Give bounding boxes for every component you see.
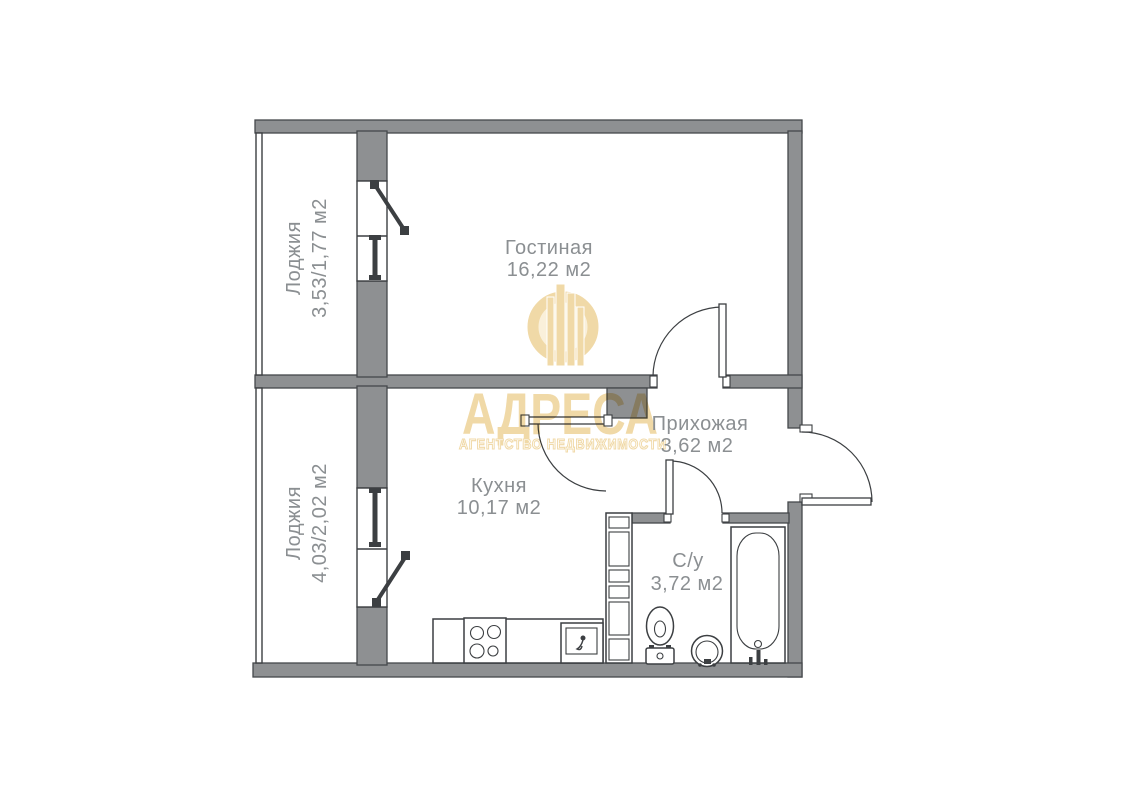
bathtub-faucet (764, 659, 768, 665)
room-label-loggia-top-name: Лоджия (283, 221, 305, 295)
wall-window-bottom-lower (357, 607, 387, 665)
vent-cell (609, 517, 629, 528)
basin-tap (712, 663, 716, 667)
washbasin-icon (692, 636, 723, 667)
room-label-loggia-top-area: 3,53/1,77 м2 (309, 198, 331, 318)
kitchen-fixtures (433, 618, 603, 663)
watermark: АДРЕСА АГЕНТСТВО НЕДВИЖИМОСТИ (459, 284, 667, 453)
burner (488, 646, 498, 656)
toilet-button (657, 653, 663, 659)
bathtub-faucet (757, 650, 761, 665)
room-label-kitchen-name: Кухня (471, 475, 527, 497)
watermark-subtitle: АГЕНТСТВО НЕДВИЖИМОСТИ (459, 436, 667, 453)
stove-icon (464, 618, 506, 663)
wall-window-bottom-upper (357, 386, 387, 488)
sash-cap (369, 542, 381, 547)
vent-cell (609, 639, 629, 660)
door-leaf (666, 460, 673, 514)
window-closed-sash (373, 492, 378, 542)
sash-cap (372, 598, 381, 607)
wall-window-top-lower (357, 281, 387, 377)
vent-cell (609, 602, 629, 635)
room-label-hallway-area: 3,62 м2 (661, 435, 734, 457)
room-label-kitchen-area: 10,17 м2 (457, 497, 541, 519)
door-entrance (800, 425, 872, 505)
sash-cap (401, 551, 410, 560)
sash-cap (369, 488, 381, 493)
door-swing-arc (670, 461, 722, 513)
wall-bath-top-right (723, 513, 789, 523)
toilet-icon (646, 607, 674, 664)
vent-cell (609, 570, 629, 582)
burner (471, 627, 484, 640)
door-living-room (650, 304, 730, 387)
sash-cap (370, 180, 379, 189)
sink-faucet (581, 636, 586, 641)
vent-cell (609, 586, 629, 598)
floor-plan-page: АДРЕСА АГЕНТСТВО НЕДВИЖИМОСТИ Гостиная 1… (0, 0, 1132, 800)
sash-cap (400, 226, 409, 235)
bathtub-inner (737, 533, 779, 649)
window-closed-sash (373, 239, 378, 276)
stove-body (464, 618, 506, 663)
door-leaf (719, 304, 726, 377)
room-label-bathroom-area: 3,72 м2 (651, 573, 724, 595)
door-jamb (664, 514, 671, 522)
basin-tap (698, 663, 702, 667)
door-swing-arc (802, 432, 872, 502)
door-jamb (722, 514, 729, 522)
room-label-living-name: Гостиная (505, 237, 593, 259)
toilet-hinge (666, 645, 671, 648)
sash-cap (369, 275, 381, 280)
toilet-hinge (649, 645, 654, 648)
door-swing-arc (653, 307, 722, 376)
wall-top (255, 120, 802, 133)
vent-cell (609, 532, 629, 566)
loggia-bottom-glazing (256, 388, 262, 663)
room-label-hallway-name: Прихожая (652, 413, 749, 435)
vent-shaft (606, 513, 632, 663)
window-living-loggia (357, 180, 409, 281)
door-leaf (802, 498, 871, 505)
loggia-top-glazing (256, 133, 262, 375)
sash-cap (369, 235, 381, 240)
burner (470, 644, 484, 658)
wall-right-lower (788, 502, 802, 677)
wall-bottom (253, 663, 802, 677)
room-label-loggia-bottom-area: 4,03/2,02 м2 (309, 463, 331, 583)
room-label-bathroom-name: С/у (672, 550, 704, 572)
window-kitchen-loggia (357, 488, 410, 607)
bathtub-faucet (749, 657, 753, 665)
logo-bar (547, 297, 554, 366)
loggia-glazing (256, 133, 262, 663)
door-bathroom (664, 460, 729, 522)
bathtub-drain (755, 641, 762, 648)
door-jamb (800, 425, 812, 432)
sink-basin (566, 628, 597, 654)
bathtub-icon (731, 527, 785, 665)
logo-bar (567, 293, 575, 366)
bathroom-fixtures (646, 527, 785, 667)
burner (488, 626, 501, 639)
wall-window-top-upper (357, 131, 387, 181)
room-label-loggia-bottom-name: Лоджия (283, 486, 305, 560)
kitchen-sink-icon (561, 623, 603, 663)
basin-faucet (704, 659, 711, 664)
room-label-living-area: 16,22 м2 (507, 259, 591, 281)
logo-bar (556, 284, 565, 366)
wall-mid-right (723, 375, 802, 388)
floor-plan: АДРЕСА АГЕНТСТВО НЕДВИЖИМОСТИ Гостиная 1… (0, 0, 1132, 800)
watermark-logo-icon (533, 284, 593, 366)
toilet-bowl-inner (655, 621, 666, 637)
logo-bar (577, 307, 584, 366)
